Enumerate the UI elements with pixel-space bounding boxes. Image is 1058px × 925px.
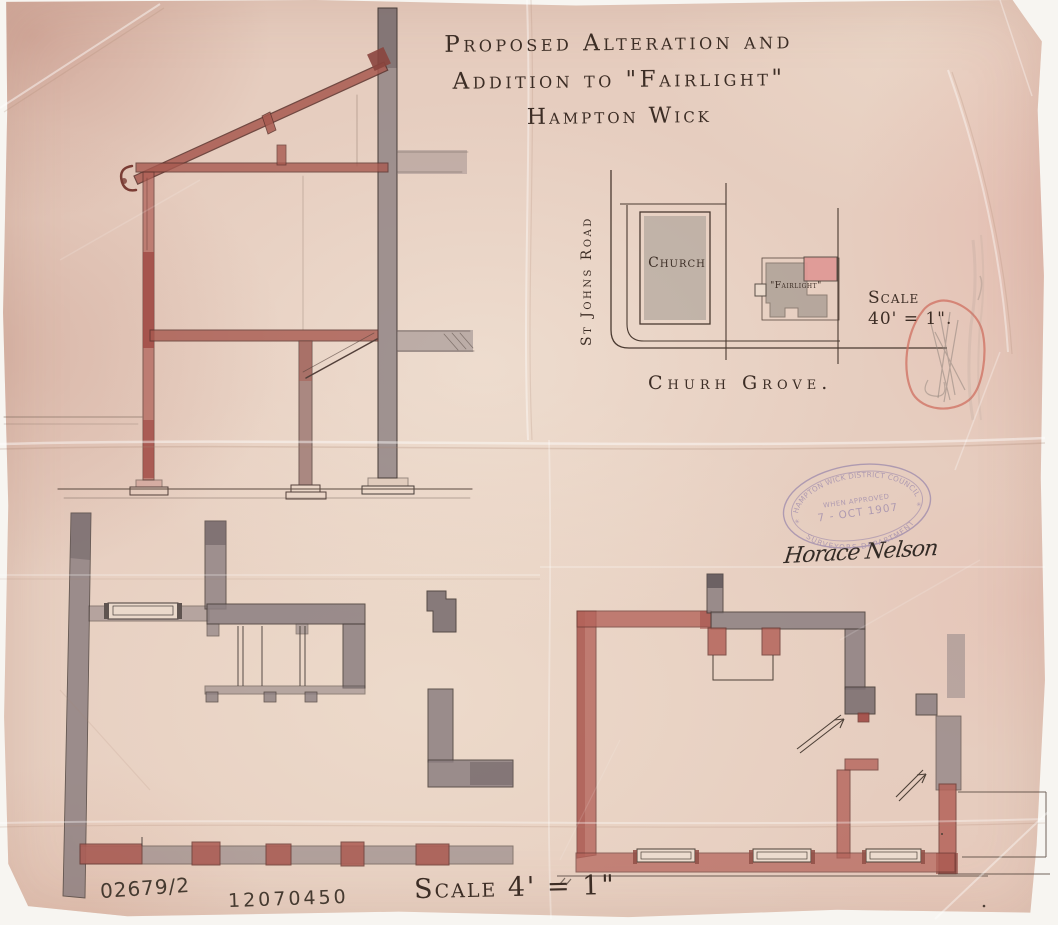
site-plan-scale: Scale 40' = 1". (868, 288, 952, 330)
site-plan-scale-word: Scale (868, 288, 952, 309)
reference-number-right: 12070450 (228, 886, 349, 912)
stamp-star-right: ✳ (916, 501, 922, 509)
title-line-3: Hampton Wick (424, 102, 814, 131)
stamp-star-left: ✳ (794, 518, 800, 526)
fairlight-label: "Fairlight" (763, 281, 829, 291)
floor-plan-left (63, 513, 513, 898)
st-johns-road-label: St Johns Road (579, 186, 595, 346)
paper-creases (0, 0, 1048, 919)
church-grove-label: Churh Grove. (648, 372, 832, 394)
church-label: Church (646, 255, 708, 271)
section-drawing (4, 8, 474, 499)
site-plan-scale-value: 40' = 1". (868, 309, 952, 330)
title-line-1: Proposed Alteration and (423, 28, 813, 58)
floor-plan-right (557, 574, 1050, 907)
scanned-drawing-sheet: HAMPTON WICK DISTRICT COUNCIL SURVEYORS … (0, 0, 1058, 925)
drawing-title: Proposed Alteration and Addition to "Fai… (423, 28, 814, 131)
drawings-layer: HAMPTON WICK DISTRICT COUNCIL SURVEYORS … (0, 0, 1058, 925)
main-scale-note: Scale 4' = 1" (414, 870, 616, 905)
title-line-2: Addition to "Fairlight" (424, 65, 814, 95)
